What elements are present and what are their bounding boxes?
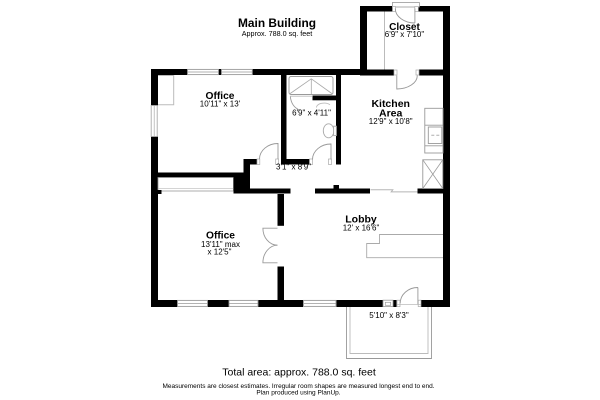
svg-text:6'9" x 4'11": 6'9" x 4'11"	[292, 108, 331, 117]
svg-text:Total area: approx. 788.0 sq.: Total area: approx. 788.0 sq. feet	[222, 367, 376, 379]
svg-text:x 12'5": x 12'5"	[208, 247, 232, 256]
svg-text:12' x 16'6": 12' x 16'6"	[343, 224, 380, 233]
svg-text:Plan produced using PlanUp.: Plan produced using PlanUp.	[256, 389, 340, 396]
svg-text:12'9" x 10'8": 12'9" x 10'8"	[369, 117, 413, 126]
svg-text:5'10" x 8'3": 5'10" x 8'3"	[369, 311, 409, 320]
svg-text:3'1" x 8'9": 3'1" x 8'9"	[276, 163, 311, 172]
svg-text:6'9" x 7'10": 6'9" x 7'10"	[385, 30, 425, 39]
svg-text:10'11" x 13': 10'11" x 13'	[200, 99, 241, 108]
svg-text:Approx. 788.0 sq. feet: Approx. 788.0 sq. feet	[242, 29, 313, 38]
